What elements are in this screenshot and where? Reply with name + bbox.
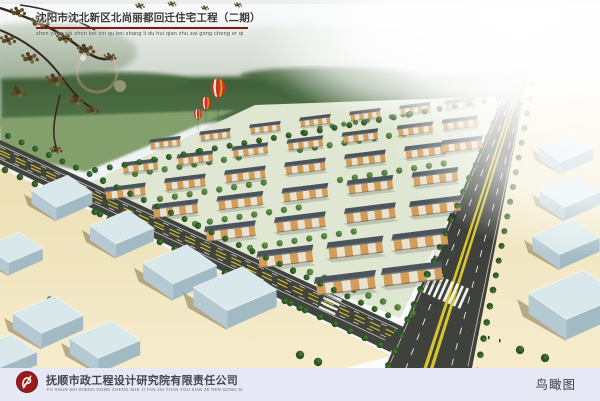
project-title-pinyin: shen yang shi shen bei xin qu bei shang … xyxy=(36,31,336,37)
company-pinyin: FU SHUN SHI ZHENG GONG CHENG SHE JI YAN … xyxy=(47,387,243,392)
footer-bar: 抚顺市政工程设计研究院有限责任公司 FU SHUN SHI ZHENG GONG… xyxy=(0,368,600,401)
title-underline xyxy=(36,27,248,29)
presentation-board: 沈阳市沈北新区北尚丽都回迁住宅工程（二期） shen yang shi shen… xyxy=(0,0,600,401)
company-name: 抚顺市政工程设计研究院有限责任公司 xyxy=(46,372,238,388)
view-caption: 鸟瞰图 xyxy=(535,374,576,393)
title-block: 沈阳市沈北新区北尚丽都回迁住宅工程（二期） shen yang shi shen… xyxy=(36,10,336,37)
project-title: 沈阳市沈北新区北尚丽都回迁住宅工程（二期） xyxy=(36,10,336,25)
company-logo-icon xyxy=(16,371,38,393)
aerial-rendering xyxy=(0,0,600,368)
